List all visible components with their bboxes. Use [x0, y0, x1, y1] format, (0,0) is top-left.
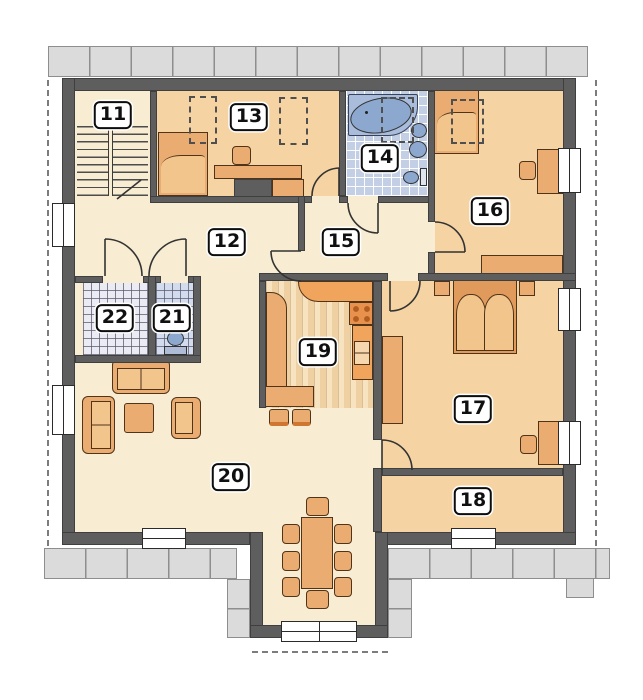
dresser [272, 179, 304, 197]
window-bay [281, 621, 357, 642]
window-right-room16 [558, 148, 581, 193]
roof-outline-dashed-right [595, 80, 597, 546]
armchair [171, 397, 201, 439]
window-left-living [52, 385, 75, 435]
room-badge-15: 15 [322, 228, 360, 256]
toilet-bowl [403, 171, 419, 184]
dining-table [301, 517, 333, 589]
dining-chair [334, 551, 352, 571]
dining-chair [306, 590, 329, 609]
double-bed [453, 280, 517, 354]
kitchen-counter [298, 281, 373, 302]
wall-hall-top [150, 196, 312, 203]
toilet-tank [164, 346, 187, 355]
wall-kitchen-left [259, 281, 266, 408]
nightstand [519, 281, 535, 296]
armchair [82, 396, 115, 454]
floor-plan-canvas: 11 12 13 14 15 16 17 18 19 20 21 22 [0, 0, 643, 700]
bay-wall-left [250, 532, 263, 638]
toilet-bowl [167, 331, 184, 346]
dining-chair [334, 577, 352, 597]
kitchen-bench [266, 292, 287, 390]
paving-strip-bottom-left [44, 548, 237, 579]
room-badge-19: 19 [299, 338, 337, 366]
wall-hall-top-mid [339, 196, 348, 203]
window-right-room17-upper [558, 288, 581, 331]
bar-table [264, 386, 314, 407]
wall-20-18-lower [373, 468, 382, 532]
dining-chair [282, 524, 300, 544]
washbasin [409, 141, 427, 158]
room-badge-11: 11 [94, 101, 132, 129]
desk [214, 165, 302, 179]
exterior-wall-top [62, 78, 576, 91]
roof-window [381, 97, 414, 143]
room-badge-21: 21 [153, 304, 191, 332]
paving-bay-right [388, 579, 412, 638]
wall-21-right [193, 276, 201, 363]
nightstand [434, 281, 450, 296]
room-badge-18: 18 [454, 487, 492, 515]
wall-13-14 [339, 91, 346, 196]
toilet-tank [420, 168, 427, 186]
wall-mid-horizontal-right [418, 273, 576, 281]
paving-strip-top [48, 46, 588, 77]
bar-stool [269, 409, 289, 426]
wall-14-16-upper [428, 91, 435, 222]
room-badge-12: 12 [208, 228, 246, 256]
dining-chair [282, 551, 300, 571]
room-badge-13: 13 [230, 103, 268, 131]
paving-strip-bottom-right [388, 548, 610, 579]
dining-chair [282, 577, 300, 597]
wall-mid-horizontal-left [259, 273, 388, 281]
wardrobe [382, 336, 403, 424]
room-badge-17: 17 [454, 395, 492, 423]
dining-chair [306, 497, 329, 516]
roof-outline-dashed-left [47, 80, 49, 546]
stove-burners [349, 302, 373, 325]
bay-wall-right [375, 532, 388, 638]
wall-11-13 [150, 91, 157, 203]
wall-12-15-stub [298, 196, 305, 251]
window-bottom-room18 [451, 528, 496, 549]
wall-22-top-left [75, 276, 103, 283]
dining-chair [334, 524, 352, 544]
roof-outline-dashed-bay [252, 651, 388, 653]
desk-chair [519, 161, 536, 180]
wall-20-17-upper [373, 281, 382, 440]
wall-22-21-bottom [75, 355, 201, 363]
window-left-hall [52, 203, 75, 247]
window-bottom-living [142, 528, 186, 549]
wall-17-18 [382, 468, 563, 476]
desk-chair [520, 435, 537, 454]
sofa [112, 359, 170, 394]
room-badge-16: 16 [471, 197, 509, 225]
exterior-wall-left [62, 78, 75, 545]
room-badge-22: 22 [96, 304, 134, 332]
roof-window [279, 97, 308, 145]
kitchen-sink [354, 341, 370, 365]
room-badge-14: 14 [361, 144, 399, 172]
desk-chair-mat [234, 179, 272, 197]
desk-chair [232, 146, 251, 165]
room-badge-20: 20 [212, 463, 250, 491]
wall-bath-bottom [378, 196, 432, 203]
bar-stool [292, 409, 311, 426]
window-right-room17-lower [558, 421, 581, 465]
paving-corner-bottom-right [566, 578, 594, 598]
roof-window [189, 96, 217, 144]
paving-bay-left [227, 579, 250, 638]
coffee-table [124, 403, 154, 433]
roof-window [451, 99, 484, 144]
